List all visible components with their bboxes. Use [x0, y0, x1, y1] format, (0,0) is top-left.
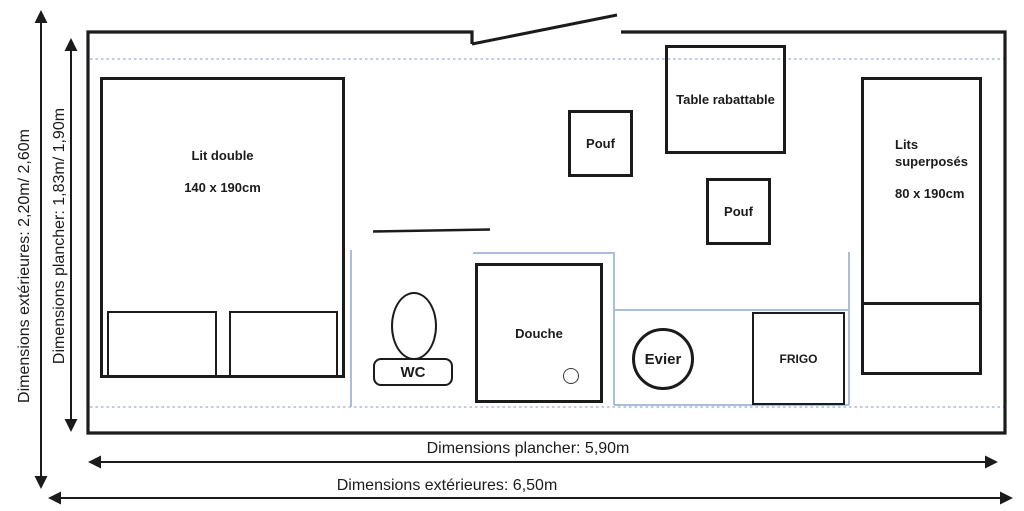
interior-partition-wall — [373, 230, 490, 232]
door-leaf — [472, 15, 617, 44]
toilet-label: WC — [401, 364, 426, 381]
bunk-beds-divider — [864, 302, 979, 305]
double-bed-labels: Lit double 140 x 190cm — [100, 148, 345, 195]
sink-label: Evier — [645, 351, 682, 368]
bottom-inner-dimension-label: Dimensions plancher: 5,90m — [427, 440, 630, 458]
bottom-outer-dimension-label: Dimensions extérieures: 6,50m — [337, 477, 558, 495]
pouf-bottom-label: Pouf — [724, 204, 753, 219]
left-inner-dimension-label: Dimensions plancher: 1,83m/ 1,90m — [51, 108, 69, 364]
shower: Douche — [475, 263, 603, 403]
toilet-bowl-shape — [391, 292, 437, 360]
shower-drain-icon — [563, 368, 579, 384]
bunk-beds-labels: Lits superposés 80 x 190cm — [895, 136, 977, 202]
pouf-bottom: Pouf — [706, 178, 771, 245]
bed-pillow-left — [107, 311, 217, 377]
folding-table: Table rabattable — [665, 45, 786, 154]
floor-plan-canvas: Lit double 140 x 190cm Pouf Pouf Table r… — [0, 0, 1024, 511]
shower-label: Douche — [515, 326, 563, 341]
pouf-top: Pouf — [568, 110, 633, 177]
fridge: FRIGO — [752, 312, 845, 405]
bunk-beds-size: 80 x 190cm — [895, 185, 977, 202]
double-bed-label: Lit double — [100, 148, 345, 163]
left-outer-dimension-label: Dimensions extérieures: 2,20m/ 2,60m — [16, 129, 34, 403]
bunk-beds — [861, 77, 982, 375]
pouf-top-label: Pouf — [586, 136, 615, 151]
folding-table-label: Table rabattable — [676, 92, 775, 107]
toilet: WC — [373, 358, 453, 386]
bed-pillow-right — [229, 311, 338, 377]
double-bed-size: 140 x 190cm — [100, 180, 345, 195]
bunk-beds-label: Lits superposés — [895, 136, 977, 170]
sink: Evier — [632, 328, 694, 390]
fridge-label: FRIGO — [780, 352, 818, 366]
